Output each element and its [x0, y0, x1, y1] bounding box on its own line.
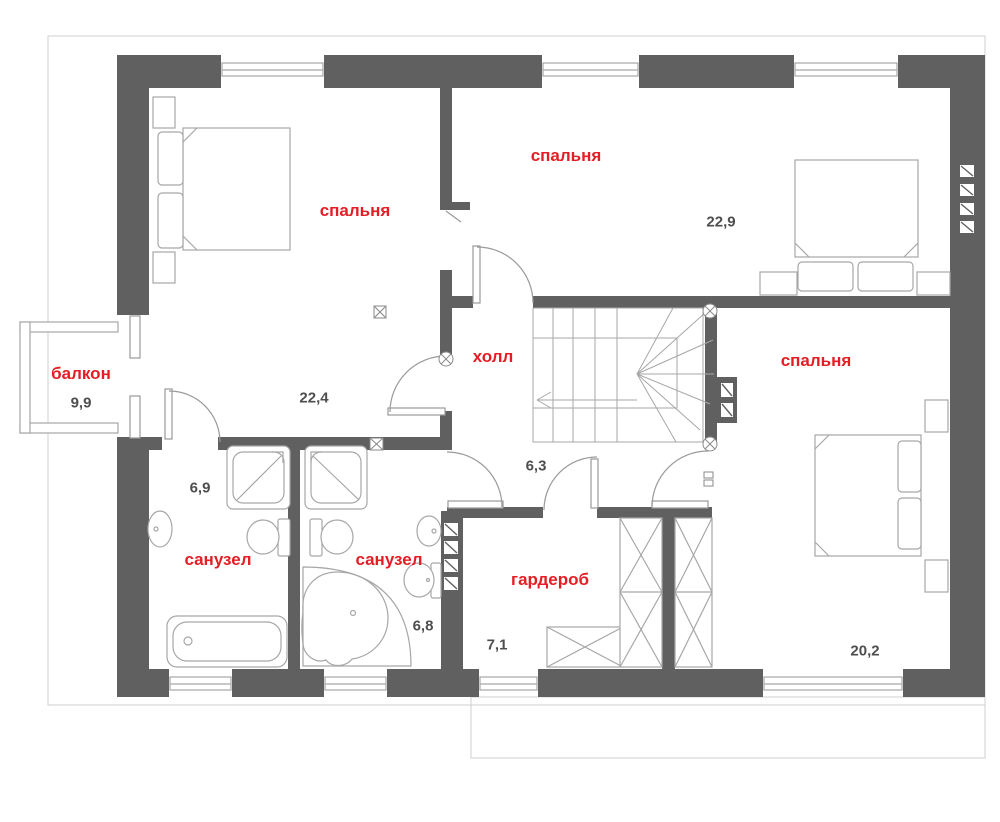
room-label-balcony: балкон: [51, 364, 111, 384]
room-area-bedroom-top-right: 22,9: [706, 214, 735, 231]
room-label-wardrobe: гардероб: [511, 570, 589, 590]
room-label-bedroom-top-right: спальня: [531, 146, 602, 166]
room-area-bathroom-right: 6,8: [413, 618, 434, 635]
floor-plan: спальня 22,4 спальня 22,9 спальня 20,2 х…: [0, 0, 1000, 822]
room-area-bedroom-top-left: 22,4: [299, 390, 328, 407]
room-area-hall: 6,3: [526, 458, 547, 475]
room-label-bedroom-right: спальня: [781, 351, 852, 371]
room-label-hall: холл: [473, 347, 514, 367]
room-label-bathroom-left: санузел: [184, 550, 251, 570]
room-label-bathroom-right: санузел: [355, 550, 422, 570]
room-area-wardrobe: 7,1: [487, 637, 508, 654]
room-area-balcony: 9,9: [71, 395, 92, 412]
room-area-bedroom-right: 20,2: [850, 643, 879, 660]
labels: спальня 22,4 спальня 22,9 спальня 20,2 х…: [0, 0, 1000, 822]
room-label-bedroom-top-left: спальня: [320, 201, 391, 221]
room-area-bathroom-left: 6,9: [190, 480, 211, 497]
